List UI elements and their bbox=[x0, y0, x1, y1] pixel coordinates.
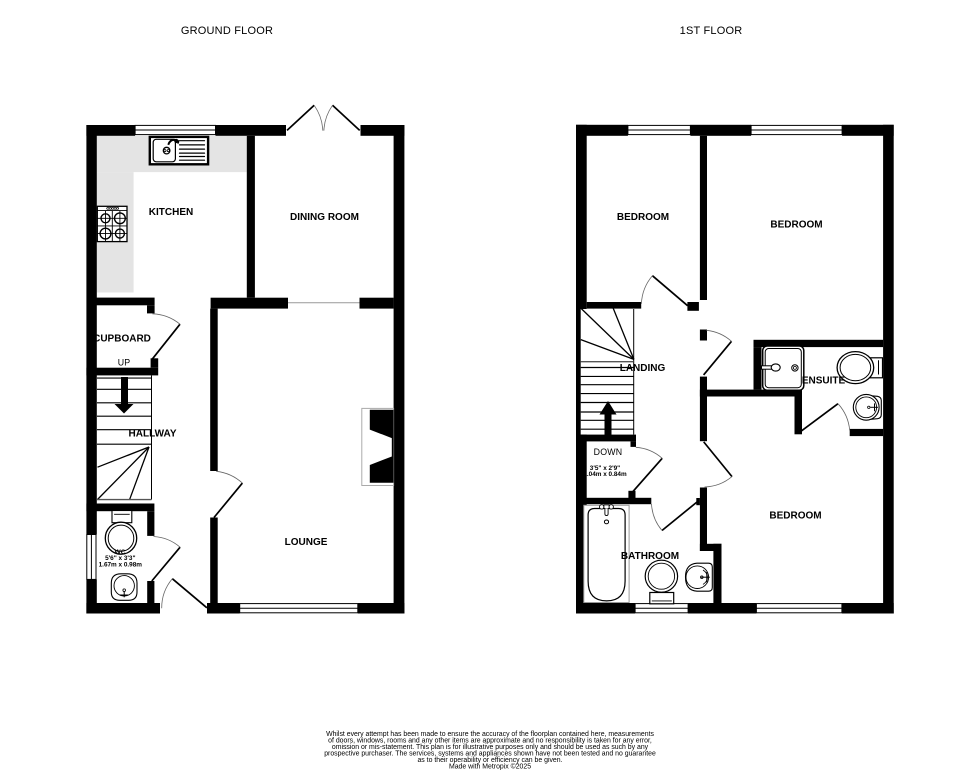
svg-text:BEDROOM: BEDROOM bbox=[770, 219, 822, 230]
svg-text:DOWN: DOWN bbox=[594, 447, 623, 457]
svg-text:1.67m x 0.98m: 1.67m x 0.98m bbox=[99, 561, 143, 568]
svg-text:LOUNGE: LOUNGE bbox=[285, 537, 328, 548]
svg-text:DINING ROOM: DINING ROOM bbox=[290, 212, 359, 223]
svg-text:LANDING: LANDING bbox=[620, 363, 666, 374]
svg-text:BATHROOM: BATHROOM bbox=[621, 551, 679, 562]
svg-text:GROUND FLOOR: GROUND FLOOR bbox=[181, 25, 273, 37]
svg-text:1.04m x 0.84m: 1.04m x 0.84m bbox=[583, 471, 627, 478]
svg-text:Made with Metropix ©2025: Made with Metropix ©2025 bbox=[449, 762, 531, 770]
svg-text:ENSUITE: ENSUITE bbox=[802, 375, 846, 386]
svg-text:BEDROOM: BEDROOM bbox=[617, 212, 669, 223]
svg-text:KITCHEN: KITCHEN bbox=[149, 207, 193, 218]
svg-text:HALLWAY: HALLWAY bbox=[129, 429, 177, 440]
svg-text:BEDROOM: BEDROOM bbox=[769, 510, 821, 521]
svg-text:CUPBOARD: CUPBOARD bbox=[93, 333, 151, 344]
svg-text:1ST FLOOR: 1ST FLOOR bbox=[680, 25, 743, 37]
svg-text:UP: UP bbox=[118, 357, 131, 367]
